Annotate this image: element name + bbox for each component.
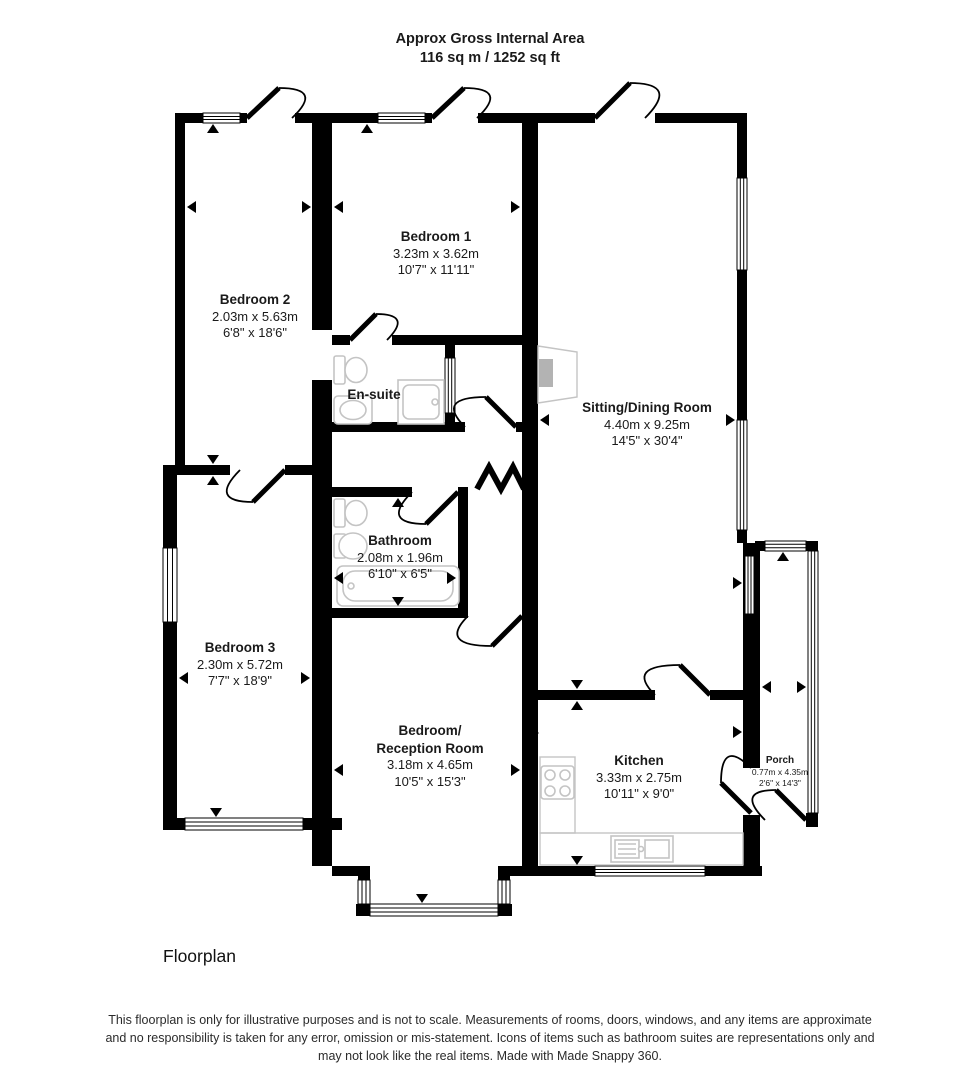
room-label-sitting-dining: Sitting/Dining Room 4.40m x 9.25m 14'5" … xyxy=(582,399,712,450)
door-arc xyxy=(432,88,490,118)
room-label-bedroom3: Bedroom 3 2.30m x 5.72m 7'7" x 18'9" xyxy=(197,639,283,690)
room-dims-metric: 4.40m x 9.25m xyxy=(582,417,712,434)
room-name: Bathroom xyxy=(357,532,443,550)
room-name-line2: Reception Room xyxy=(376,740,483,758)
room-name: Bedroom 3 xyxy=(197,639,283,657)
door-arc xyxy=(721,756,751,813)
door-arc xyxy=(350,314,398,340)
door-arc xyxy=(227,470,285,502)
room-label-bedroom2: Bedroom 2 2.03m x 5.63m 6'8" x 18'6" xyxy=(212,291,298,342)
room-dims-imperial: 2'6" x 14'3" xyxy=(752,778,808,789)
window xyxy=(737,178,747,270)
floorplan-caption: Floorplan xyxy=(163,946,236,967)
measurement-arrows-group xyxy=(179,124,806,903)
kitchen-sink-icon xyxy=(611,836,673,862)
windows-group xyxy=(163,113,818,916)
window xyxy=(378,113,425,123)
room-label-kitchen: Kitchen 3.33m x 2.75m 10'11" x 9'0" xyxy=(596,752,682,803)
window xyxy=(203,113,240,123)
room-label-bedroom1: Bedroom 1 3.23m x 3.62m 10'7" x 11'11" xyxy=(393,228,479,279)
room-name: Bedroom 2 xyxy=(212,291,298,309)
room-dims-metric: 3.33m x 2.75m xyxy=(596,770,682,787)
room-name: Kitchen xyxy=(596,752,682,770)
room-dims-imperial: 7'7" x 18'9" xyxy=(197,673,283,690)
walls-group xyxy=(163,113,818,916)
room-label-bedroom-reception: Bedroom/ Reception Room 3.18m x 4.65m 10… xyxy=(376,722,483,791)
fireplace-icon xyxy=(538,346,577,403)
window xyxy=(745,556,754,614)
door-arc xyxy=(457,616,522,646)
room-name: Porch xyxy=(752,755,808,767)
room-dims-metric: 0.77m x 4.35m xyxy=(752,767,808,778)
room-name: Bedroom 1 xyxy=(393,228,479,246)
window xyxy=(498,880,510,904)
room-dims-imperial: 10'5" x 15'3" xyxy=(376,774,483,791)
window xyxy=(765,541,806,551)
room-dims-metric: 2.08m x 1.96m xyxy=(357,550,443,567)
door-arc xyxy=(399,492,458,524)
window xyxy=(737,420,747,530)
door-arc xyxy=(247,88,305,118)
room-dims-imperial: 10'7" x 11'11" xyxy=(393,262,479,279)
hob-icon xyxy=(541,766,574,799)
window xyxy=(185,818,303,830)
window xyxy=(445,358,455,413)
window xyxy=(358,880,370,904)
room-label-porch: Porch 0.77m x 4.35m 2'6" x 14'3" xyxy=(752,755,808,789)
room-dims-imperial: 10'11" x 9'0" xyxy=(596,786,682,803)
disclaimer-text: This floorplan is only for illustrative … xyxy=(100,1012,880,1065)
window xyxy=(595,866,705,876)
room-dims-metric: 3.23m x 3.62m xyxy=(393,246,479,263)
room-dims-imperial: 6'8" x 18'6" xyxy=(212,325,298,342)
opening-zigzag-icon xyxy=(477,467,524,489)
ensuite-toilet xyxy=(334,356,367,384)
floorplan-page: Approx Gross Internal Area 116 sq m / 12… xyxy=(0,0,980,1077)
room-dims-imperial: 6'10" x 6'5" xyxy=(357,566,443,583)
room-name: En-suite xyxy=(347,386,400,404)
room-label-ensuite: En-suite xyxy=(347,386,400,404)
window xyxy=(163,548,177,622)
window xyxy=(808,551,818,813)
door-arc xyxy=(595,83,659,118)
shower-icon xyxy=(398,380,444,424)
door-arc xyxy=(752,790,806,820)
room-dims-metric: 3.18m x 4.65m xyxy=(376,757,483,774)
room-dims-metric: 2.03m x 5.63m xyxy=(212,309,298,326)
room-dims-metric: 2.30m x 5.72m xyxy=(197,657,283,674)
room-name-line1: Bedroom/ xyxy=(376,722,483,740)
room-name: Sitting/Dining Room xyxy=(582,399,712,417)
bathroom-toilet xyxy=(334,499,367,527)
window xyxy=(370,904,498,916)
room-label-bathroom: Bathroom 2.08m x 1.96m 6'10" x 6'5" xyxy=(357,532,443,583)
floorplan-drawing xyxy=(0,0,980,1077)
room-dims-imperial: 14'5" x 30'4" xyxy=(582,433,712,450)
